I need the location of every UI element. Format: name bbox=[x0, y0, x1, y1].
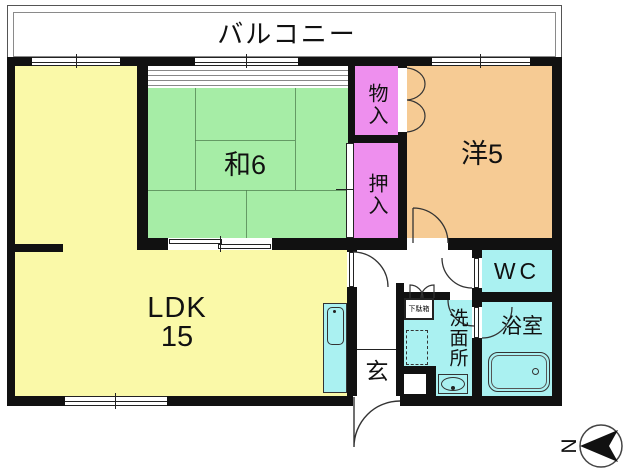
toilet-label: WC bbox=[486, 258, 548, 284]
kitchen-faucet-dot bbox=[333, 310, 336, 313]
futon-closet-label: 押入 bbox=[364, 166, 388, 224]
tatami-line bbox=[195, 88, 196, 190]
window-tick bbox=[76, 54, 77, 68]
tatami-line bbox=[195, 140, 295, 141]
shoe-cabinet: 下駄箱 bbox=[404, 298, 434, 320]
ldk-door-arc bbox=[353, 252, 388, 287]
floorplan-canvas: バルコニー bbox=[0, 0, 640, 476]
entrance-label: 玄 bbox=[363, 357, 391, 385]
storage-label: 物入 bbox=[364, 78, 388, 132]
shoe-cabinet-label: 下駄箱 bbox=[406, 300, 432, 318]
tatami-line bbox=[295, 88, 296, 190]
balcony-label: バルコニー bbox=[187, 19, 387, 49]
youshitsu-door-opening bbox=[407, 238, 448, 250]
compass-north-label: N bbox=[557, 436, 581, 456]
tatami-line bbox=[148, 190, 348, 191]
bathtub bbox=[488, 352, 550, 392]
ldk-label: LDK bbox=[141, 293, 213, 323]
washbasin-drain-dot bbox=[451, 386, 455, 390]
sliding-door-panel bbox=[169, 239, 222, 244]
entrance-door-opening bbox=[353, 396, 400, 406]
tatami-line bbox=[246, 190, 247, 238]
sliding-door-panel bbox=[218, 244, 271, 249]
washroom-door-opening bbox=[450, 292, 472, 300]
window-tick bbox=[246, 54, 247, 68]
window bbox=[65, 396, 167, 406]
washitsu-label: 和6 bbox=[215, 150, 275, 180]
compass-circle bbox=[580, 425, 622, 467]
youshitsu-label: 洋5 bbox=[452, 139, 512, 169]
kitchen-sink bbox=[327, 307, 344, 345]
bifold-door-opening bbox=[398, 68, 407, 132]
pipe-space bbox=[404, 374, 426, 394]
ldk-door-panel bbox=[349, 252, 354, 287]
fusuma-tick bbox=[336, 189, 354, 190]
bathtub-drain bbox=[532, 368, 539, 375]
wall bbox=[552, 57, 562, 406]
window-tick bbox=[115, 393, 116, 409]
washing-machine-pan bbox=[406, 330, 428, 365]
wall bbox=[472, 292, 562, 302]
wall bbox=[137, 57, 148, 250]
window-tick bbox=[480, 54, 481, 68]
sliding-door-tick bbox=[220, 236, 221, 252]
compass-north-arrow bbox=[580, 430, 618, 462]
ldk-size-label: 15 bbox=[141, 322, 213, 352]
wall bbox=[448, 238, 552, 250]
wall bbox=[13, 244, 63, 252]
room-ldk-upper-arm bbox=[15, 66, 137, 250]
washroom-label: 洗面所 bbox=[446, 304, 468, 372]
wall bbox=[7, 57, 15, 406]
genkan-step-line bbox=[357, 349, 396, 350]
window bbox=[432, 57, 530, 66]
toilet-door-panel bbox=[474, 258, 479, 288]
engawa-strip bbox=[148, 66, 348, 88]
wall bbox=[348, 135, 398, 143]
toilet-door-arc bbox=[442, 258, 472, 288]
fusuma-panel bbox=[346, 143, 354, 238]
bath-label: 浴室 bbox=[491, 314, 553, 338]
wall bbox=[348, 57, 355, 135]
bath-door-panel bbox=[474, 307, 479, 338]
